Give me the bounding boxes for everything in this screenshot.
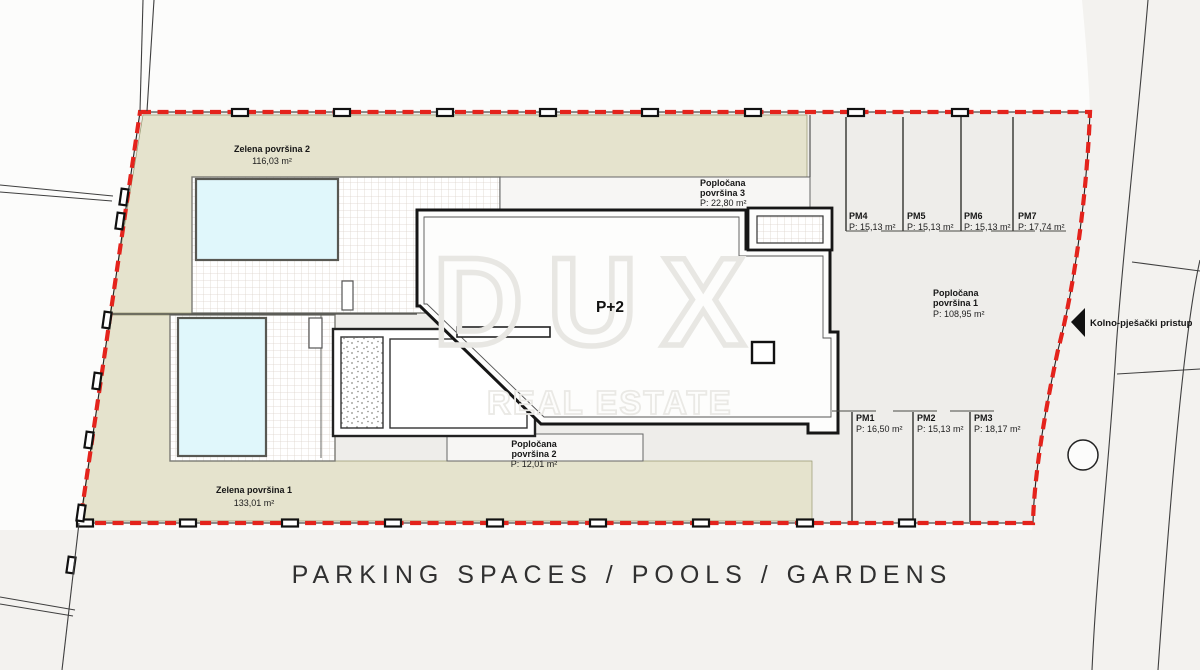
- paved1-name-line2: površina 1: [933, 298, 978, 308]
- parking-pm7-id: PM7: [1018, 211, 1037, 221]
- parking-pm1-id: PM1: [856, 413, 875, 423]
- access-road-label: Kolno-pješački pristup: [1090, 318, 1193, 329]
- parking-pm5-area: P: 15,13 m²: [907, 222, 954, 232]
- plan-title: PARKING SPACES / POOLS / GARDENS: [44, 561, 1200, 590]
- paved1-area: P: 108,95 m²: [933, 309, 985, 319]
- door-symbol-lower: [309, 318, 322, 348]
- parking-pm4-area: P: 15,13 m²: [849, 222, 896, 232]
- pool-upper: [196, 179, 338, 260]
- parking-pm5-id: PM5: [907, 211, 926, 221]
- garden1-name: Zelena površina 1: [216, 485, 292, 495]
- paved3-name-line1: Popločana: [700, 178, 747, 188]
- parking-pm2-id: PM2: [917, 413, 936, 423]
- paved2-name-line2: površina 2: [511, 449, 556, 459]
- manhole-circle: [1068, 440, 1098, 470]
- garden2-name: Zelena površina 2: [234, 144, 310, 154]
- building-floors-label: P+2: [596, 299, 624, 316]
- parking-pm6-id: PM6: [964, 211, 983, 221]
- watermark-tagline: REAL ESTATE: [487, 384, 733, 421]
- parking-pm2-area: P: 15,13 m²: [917, 424, 964, 434]
- parking-pm7-area: P: 17,74 m²: [1018, 222, 1065, 232]
- paved3-area: P: 22,80 m²: [700, 198, 747, 208]
- garden1-area: 133,01 m²: [234, 498, 275, 508]
- paved-area-3-shape: [500, 177, 810, 210]
- site-plan-page: DUX REAL ESTATE Kolno-pješački prist: [0, 0, 1200, 670]
- paved2-name-line1: Popločana: [511, 439, 558, 449]
- garden2-area: 116,03 m²: [252, 156, 292, 166]
- parking-pm3-id: PM3: [974, 413, 993, 423]
- pool-lower: [178, 318, 266, 456]
- gravel-bed: [341, 337, 383, 428]
- parking-pm6-area: P: 15,13 m²: [964, 222, 1011, 232]
- parking-pm4-id: PM4: [849, 211, 868, 221]
- paved2-area: P: 12,01 m²: [511, 459, 558, 469]
- paved1-name-line1: Popločana: [933, 288, 980, 298]
- door-symbol-upper: [342, 281, 353, 310]
- parking-pm3-area: P: 18,17 m²: [974, 424, 1021, 434]
- paved3-name-line2: površina 3: [700, 188, 745, 198]
- lower-background: [0, 530, 1200, 670]
- parking-pm1-area: P: 16,50 m²: [856, 424, 903, 434]
